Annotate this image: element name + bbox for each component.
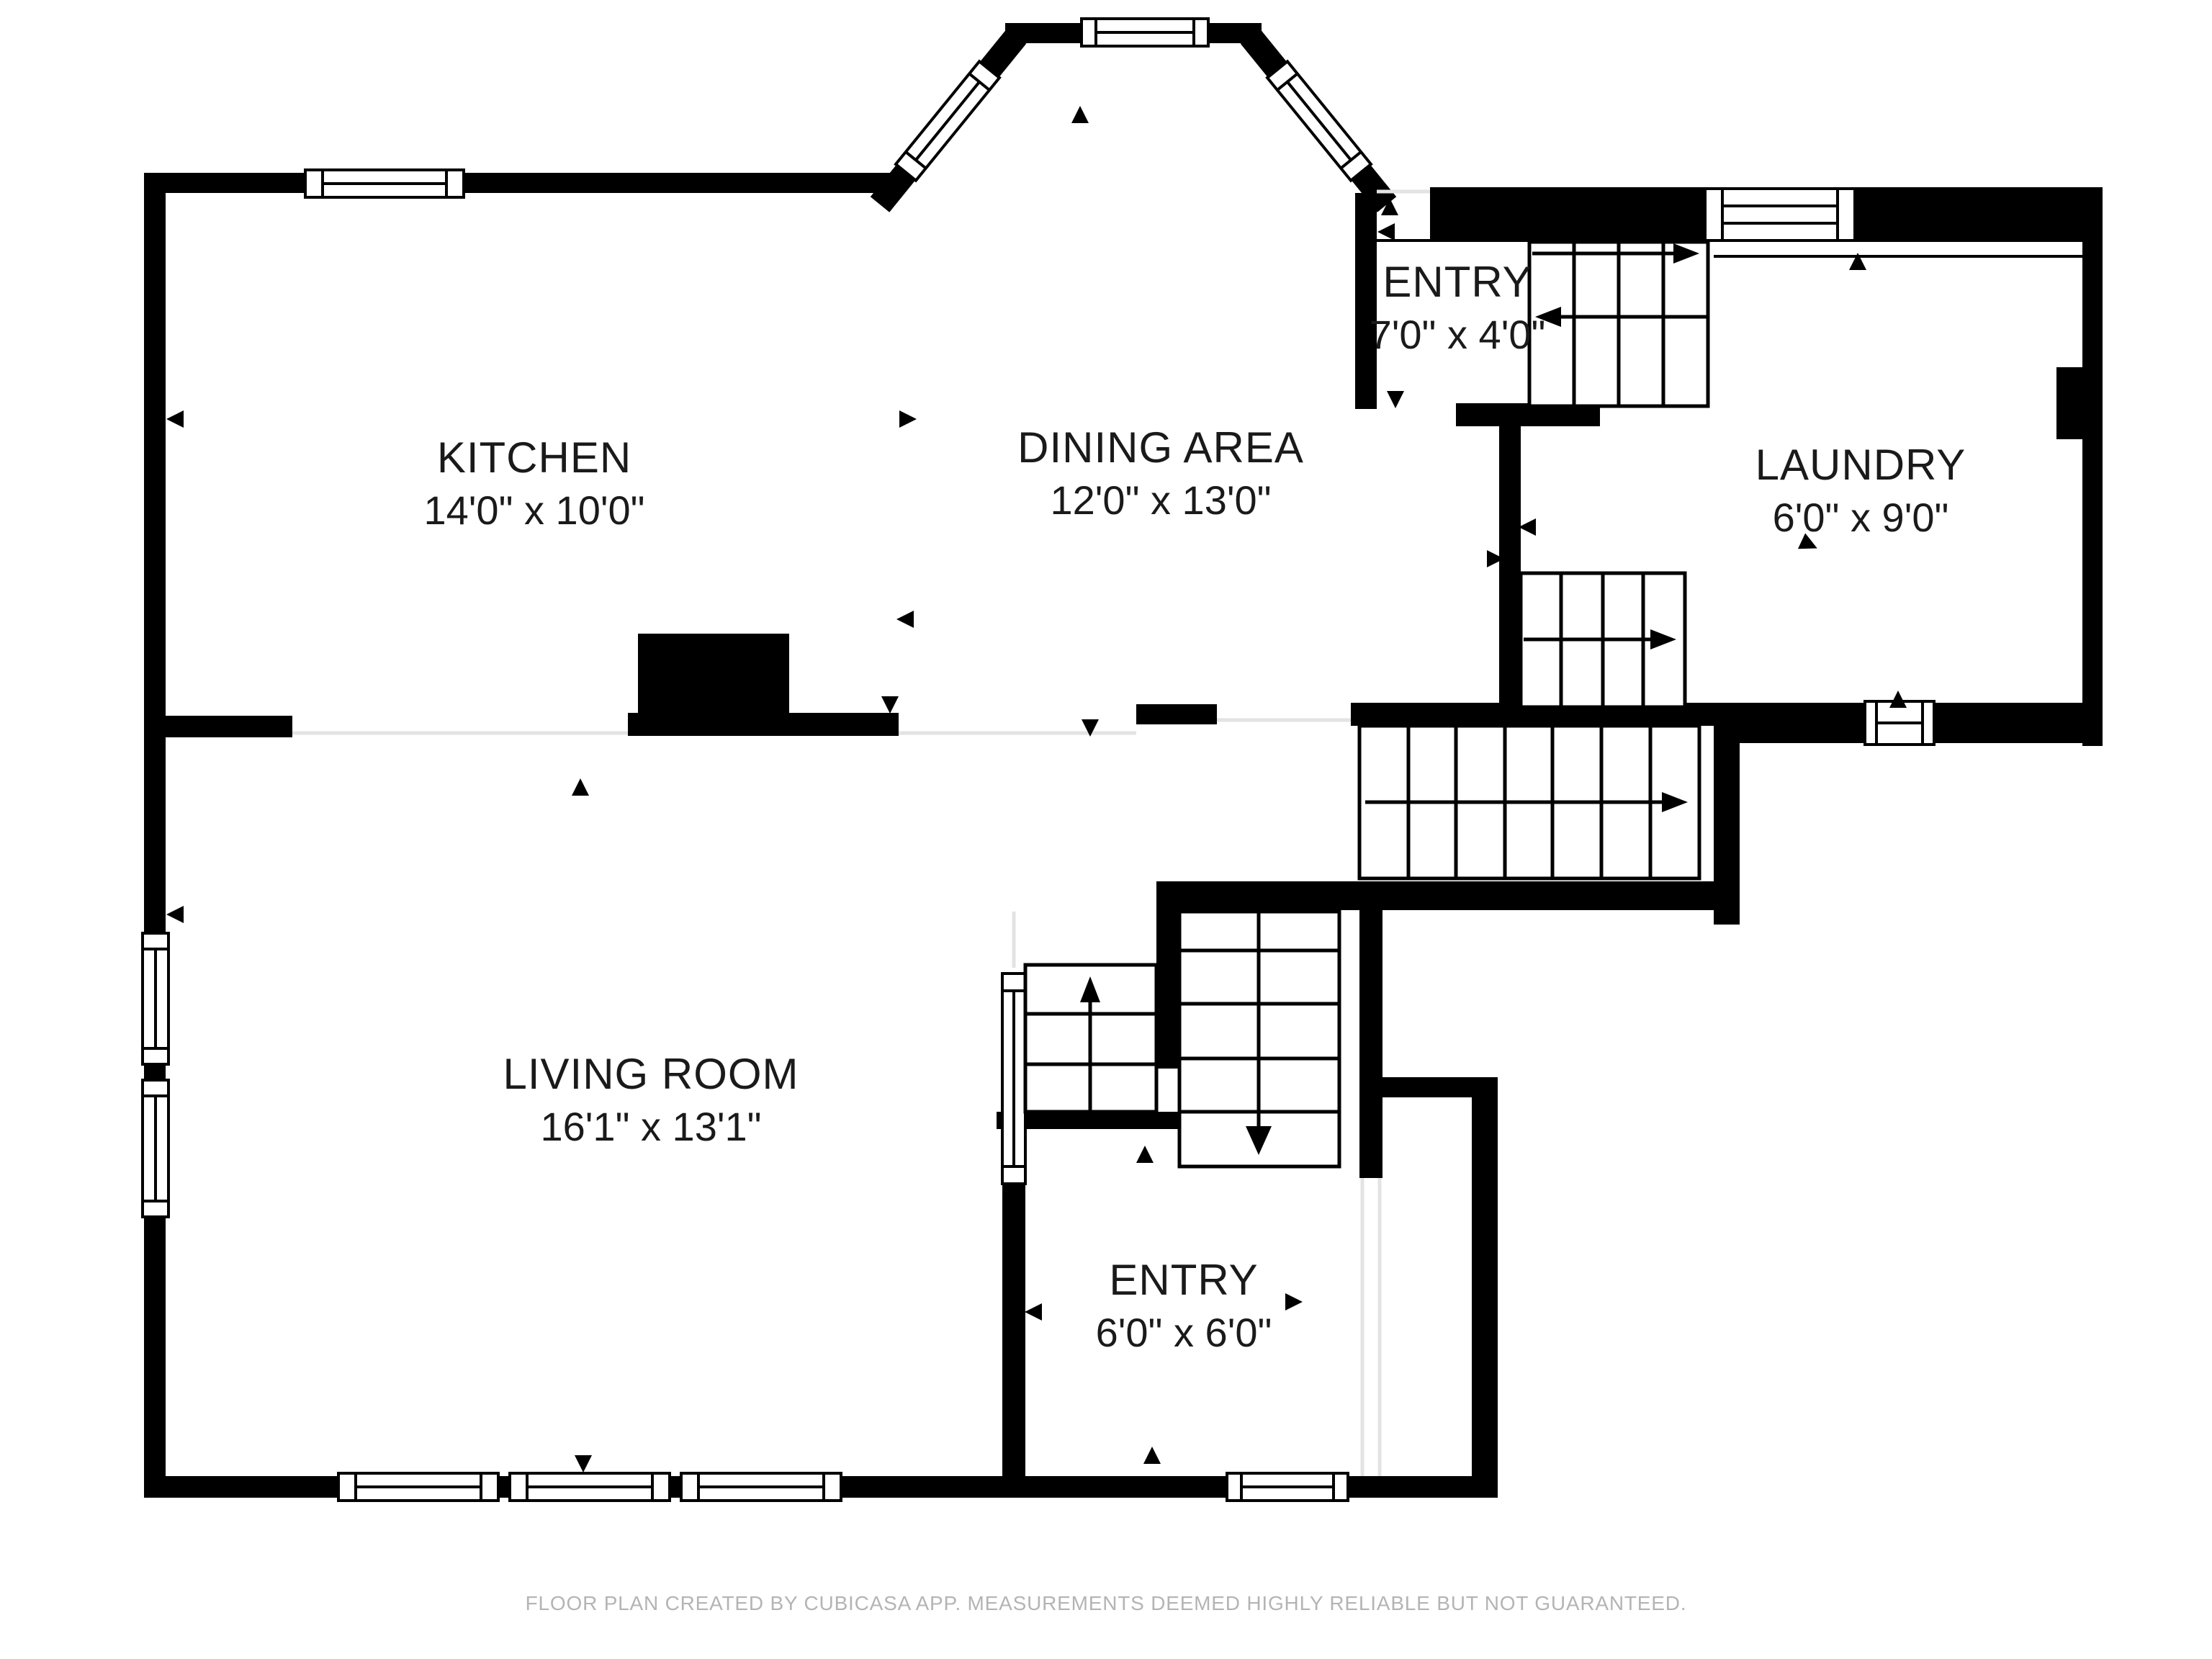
window-bay-right-diagonal: [1267, 61, 1371, 180]
marker-entry-upper-bottom: [1387, 391, 1404, 408]
wall-closet-right: [1472, 1077, 1498, 1498]
window-bay-left-diagonal: [896, 61, 999, 180]
floor-plan-page: KITCHEN 14'0" x 10'0" DINING AREA 12'0" …: [0, 0, 2212, 1659]
wall-laundry-bottom-b: [1934, 703, 2103, 743]
entry-lower-dims: 6'0" x 6'0": [1096, 1310, 1272, 1355]
marker-entry-lower-left: [1025, 1303, 1042, 1321]
marker-stair-foot: [1136, 1146, 1154, 1163]
room-label-entry-upper: ENTRY 7'0" x 4'0": [1370, 258, 1546, 357]
laundry-name: LAUNDRY: [1755, 441, 1966, 489]
marker-living-top: [572, 778, 589, 796]
marker-kitchen-right-2: [896, 611, 914, 628]
kitchen-island-block: [638, 634, 789, 717]
kitchen-dims: 14'0" x 10'0": [423, 487, 644, 533]
room-label-living-room: LIVING ROOM 16'1" x 13'1": [503, 1050, 799, 1149]
marker-entry-lower-right: [1285, 1293, 1303, 1310]
staircase-main: [1359, 726, 1699, 878]
marker-living-left: [166, 906, 184, 923]
marker-kitchen-left: [166, 410, 184, 428]
window-bottom-1: [338, 1473, 498, 1501]
floor-plan-svg: KITCHEN 14'0" x 10'0" DINING AREA 12'0" …: [0, 0, 2212, 1659]
dining-area-name: DINING AREA: [1017, 423, 1304, 472]
wall-laundry-bottom-a: [1731, 703, 1865, 743]
wall-living-entry-divider: [1002, 1184, 1025, 1476]
window-top-right: [1705, 189, 1855, 240]
entry-upper-name: ENTRY: [1382, 258, 1532, 306]
wall-bottom-4: [841, 1476, 1227, 1498]
laundry-dims: 6'0" x 9'0": [1773, 495, 1949, 540]
staircase-entry-down: [1179, 912, 1339, 1166]
wall-dining-entry-divider: [1355, 193, 1377, 409]
window-top-left: [305, 170, 464, 197]
window-bottom-3: [681, 1473, 841, 1501]
room-label-kitchen: KITCHEN 14'0" x 10'0": [423, 433, 644, 533]
entry-upper-dims: 7'0" x 4'0": [1370, 312, 1546, 357]
wall-kitchen-stub: [166, 716, 292, 737]
marker-entry-upper-left: [1377, 223, 1395, 240]
living-room-name: LIVING ROOM: [503, 1050, 799, 1098]
window-stair-side: [1002, 974, 1025, 1184]
wall-right-bump: [2056, 367, 2082, 439]
wall-stairwell-left: [1156, 881, 1179, 1069]
wall-laundry-left: [1499, 406, 1521, 703]
window-entry-bottom: [1227, 1473, 1348, 1501]
footer-disclaimer: FLOOR PLAN CREATED BY CUBICASA APP. MEAS…: [526, 1592, 1687, 1614]
marker-laundry-bottom: [1889, 691, 1907, 708]
wall-dining-stub: [1136, 704, 1217, 724]
entry-lower-name: ENTRY: [1109, 1256, 1258, 1304]
staircase-entry-up: [1025, 965, 1156, 1112]
marker-bay: [1071, 106, 1089, 123]
marker-laundry-wall-left: [1519, 518, 1536, 536]
wall-stairs-bottom: [1156, 881, 1740, 910]
marker-kitchen-right-1: [899, 410, 917, 428]
kitchen-name: KITCHEN: [437, 433, 631, 482]
wall-right-exterior: [2082, 187, 2103, 746]
wall-top-left: [144, 173, 893, 193]
dining-area-dims: 12'0" x 13'0": [1050, 477, 1271, 523]
marker-entry-lower-bottom: [1143, 1447, 1161, 1464]
wall-left-exterior: [144, 173, 166, 1498]
staircase-mid-small: [1521, 573, 1685, 707]
open-boundaries: [292, 192, 1430, 1476]
room-label-dining-area: DINING AREA 12'0" x 13'0": [1017, 423, 1304, 523]
window-bottom-2: [510, 1473, 670, 1501]
marker-living-bottom: [575, 1455, 592, 1473]
wall-stairwell-mid: [1359, 893, 1382, 1178]
living-room-dims: 16'1" x 13'1": [540, 1104, 761, 1149]
wall-bottom-3: [670, 1476, 681, 1498]
room-label-laundry: LAUNDRY 6'0" x 9'0": [1755, 441, 1966, 540]
wall-bottom-2: [498, 1476, 510, 1498]
window-left-lower: [143, 1080, 168, 1217]
window-left-upper: [143, 933, 168, 1064]
marker-dining-island: [881, 696, 899, 714]
staircase-upper-right: [1529, 242, 1708, 406]
window-bay-top: [1082, 19, 1208, 46]
wall-bottom-1: [144, 1476, 338, 1498]
room-label-entry-lower: ENTRY 6'0" x 6'0": [1096, 1256, 1272, 1355]
